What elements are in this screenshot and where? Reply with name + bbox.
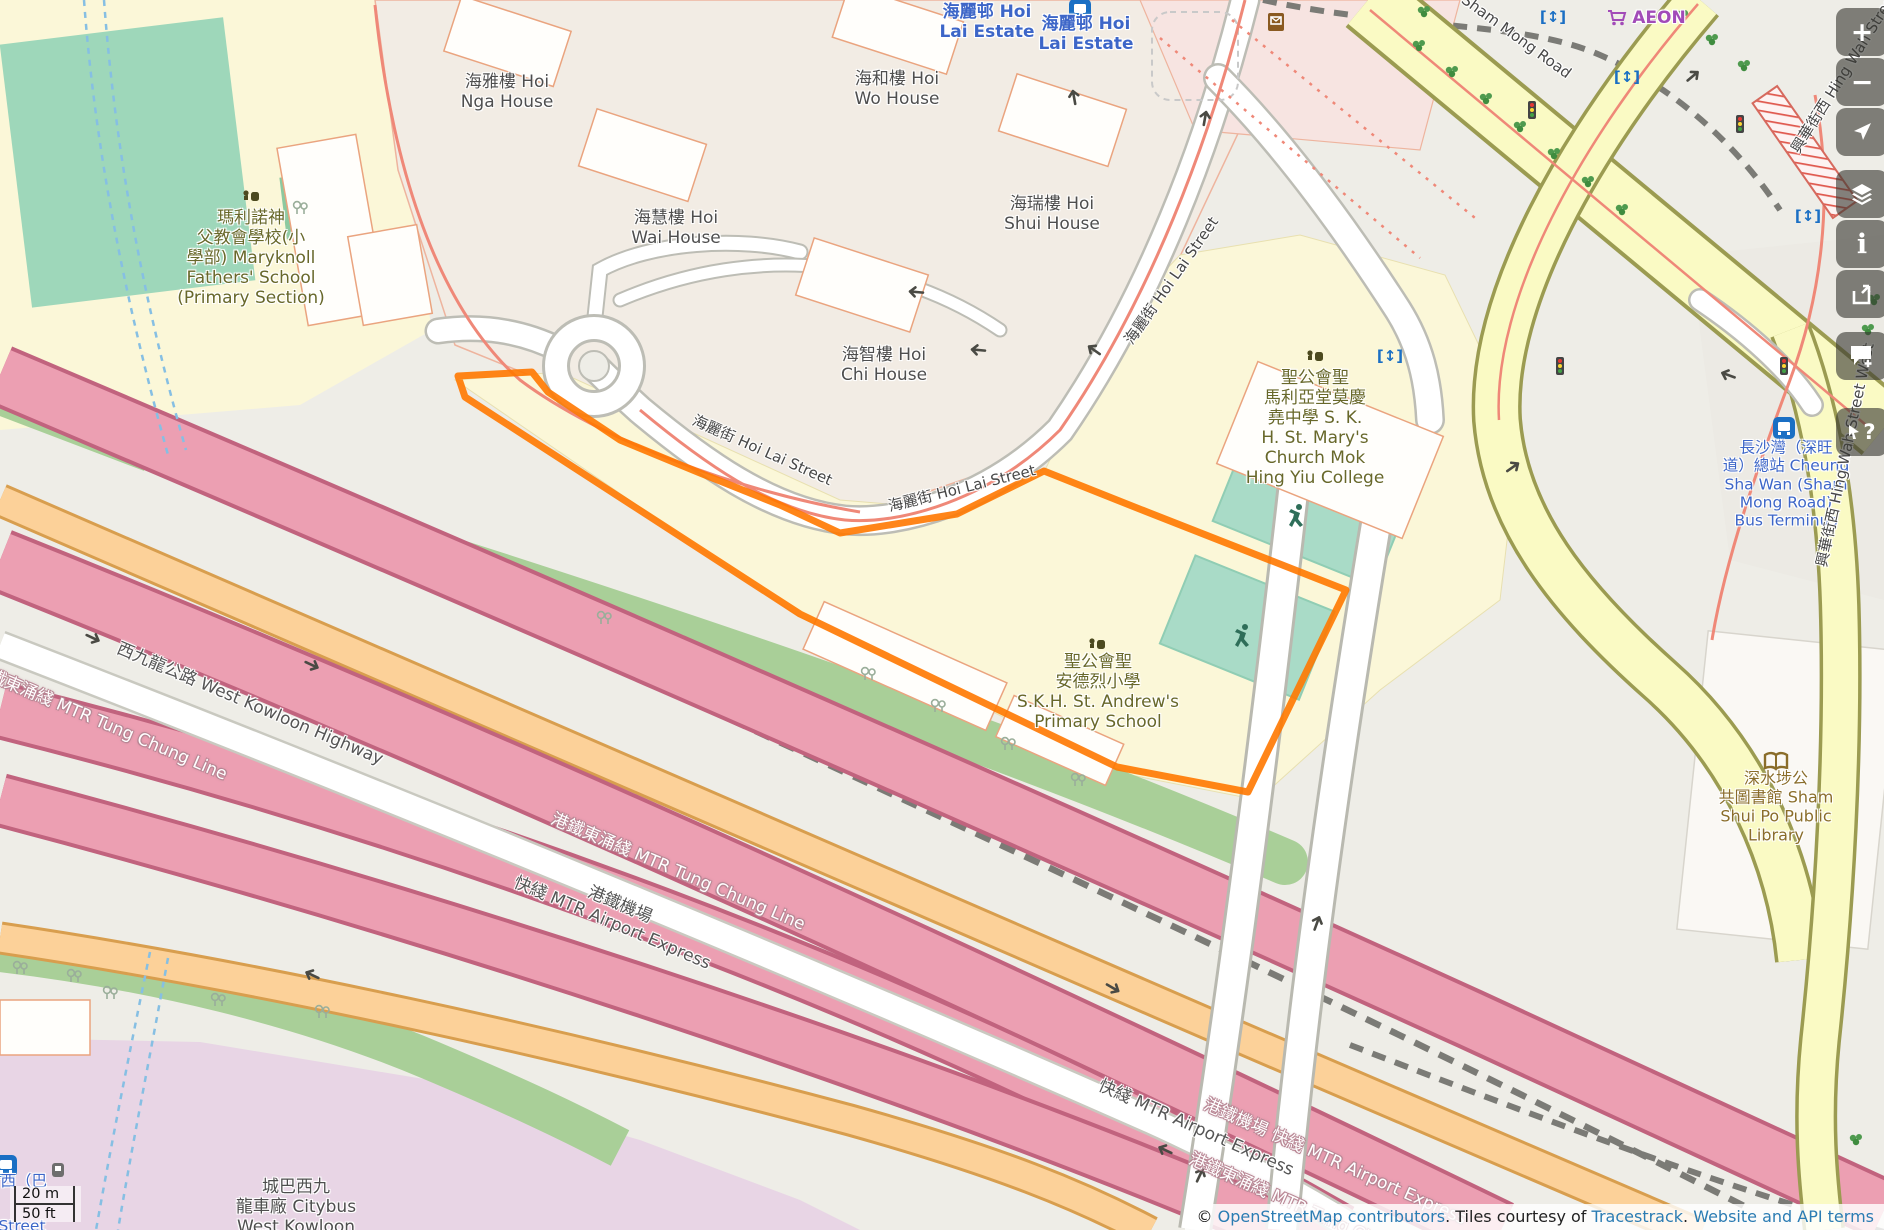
website-api-terms-link[interactable]: Website and API terms bbox=[1693, 1207, 1874, 1226]
info-icon: i bbox=[1857, 229, 1867, 260]
zoom-out-button[interactable]: − bbox=[1836, 58, 1884, 106]
postbox-icon bbox=[1268, 13, 1284, 31]
info-button[interactable]: i bbox=[1836, 220, 1884, 268]
question-icon: ? bbox=[1863, 420, 1875, 444]
signal-icon bbox=[1528, 101, 1536, 119]
layers-button[interactable] bbox=[1836, 170, 1884, 218]
share-button[interactable] bbox=[1836, 270, 1884, 318]
osm-contributors-link[interactable]: OpenStreetMap contributors bbox=[1218, 1207, 1446, 1226]
add-note-button[interactable] bbox=[1836, 332, 1884, 380]
locate-button[interactable] bbox=[1836, 108, 1884, 156]
attribution-separator: . bbox=[1683, 1207, 1693, 1226]
zoom-in-button[interactable]: + bbox=[1836, 8, 1884, 56]
query-features-button[interactable]: ? bbox=[1836, 408, 1884, 456]
bus-stop-icon bbox=[52, 1163, 64, 1177]
map-tiles: [↕] bbox=[0, 0, 1884, 1230]
scale-imperial: 50 ft bbox=[14, 1205, 75, 1222]
query-cursor-icon bbox=[1848, 424, 1860, 440]
lift-icon bbox=[1377, 347, 1403, 365]
signal-icon bbox=[1780, 357, 1788, 375]
lift-icon bbox=[1540, 8, 1566, 26]
scale-metric: 20 m bbox=[14, 1186, 75, 1205]
tracestrack-link[interactable]: Tracestrack bbox=[1592, 1207, 1684, 1226]
attribution-middle-text: . Tiles courtesy of bbox=[1445, 1207, 1586, 1226]
lift-icon bbox=[1795, 207, 1821, 225]
scale-bar: 20 m 50 ft bbox=[10, 1186, 81, 1222]
copyright-symbol: © bbox=[1197, 1207, 1213, 1226]
signal-icon bbox=[1736, 115, 1744, 133]
layers-icon bbox=[1850, 182, 1874, 206]
map-controls: + − i ? bbox=[1836, 8, 1884, 458]
bus-icon bbox=[0, 1155, 17, 1177]
attribution-bar: © OpenStreetMap contributors. Tiles cour… bbox=[1185, 1204, 1884, 1230]
signal-icon bbox=[1556, 357, 1564, 375]
plus-icon: + bbox=[1851, 17, 1874, 48]
locate-arrow-icon bbox=[1851, 121, 1873, 143]
lift-icon bbox=[1614, 68, 1640, 86]
share-icon bbox=[1850, 282, 1874, 306]
bus-icon bbox=[1773, 417, 1795, 439]
bus-icon bbox=[1069, 0, 1091, 21]
minus-icon: − bbox=[1851, 67, 1874, 98]
note-icon bbox=[1849, 344, 1875, 368]
map-viewport[interactable]: [↕] 瑪利諾神父教會學校(小學部) MaryknollFathers' Sch… bbox=[0, 0, 1884, 1230]
